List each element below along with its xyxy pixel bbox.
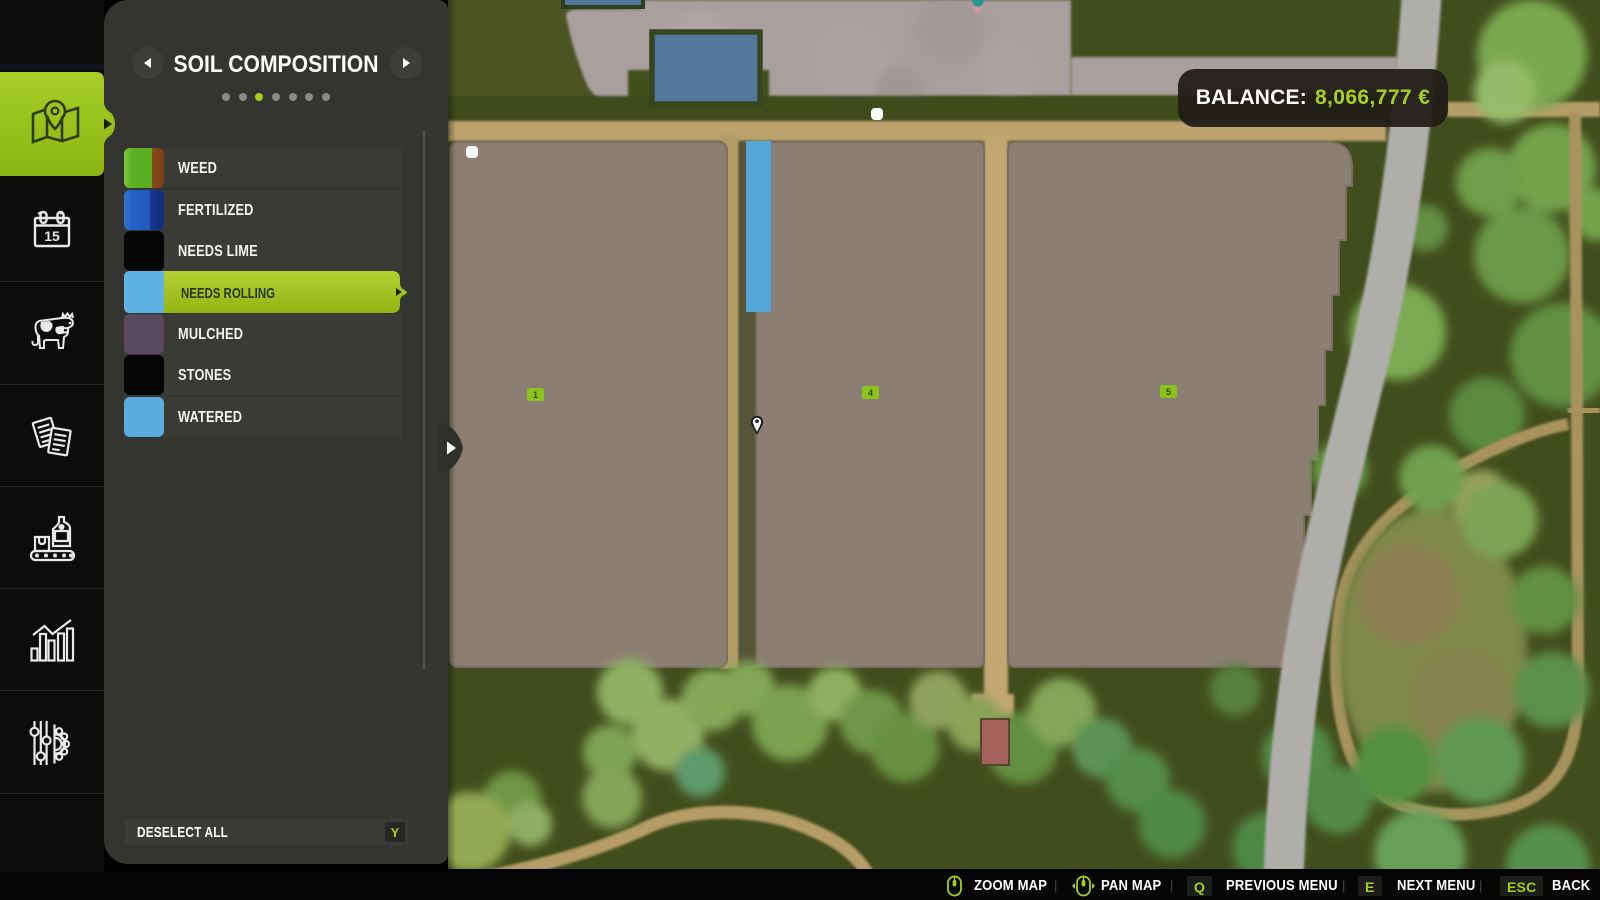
svg-text:1: 1 [533,390,538,400]
svg-text:NEEDS ROLLING: NEEDS ROLLING [181,285,275,302]
svg-text:15: 15 [44,228,60,244]
svg-text:4: 4 [868,388,873,398]
svg-text:5: 5 [1166,387,1171,397]
